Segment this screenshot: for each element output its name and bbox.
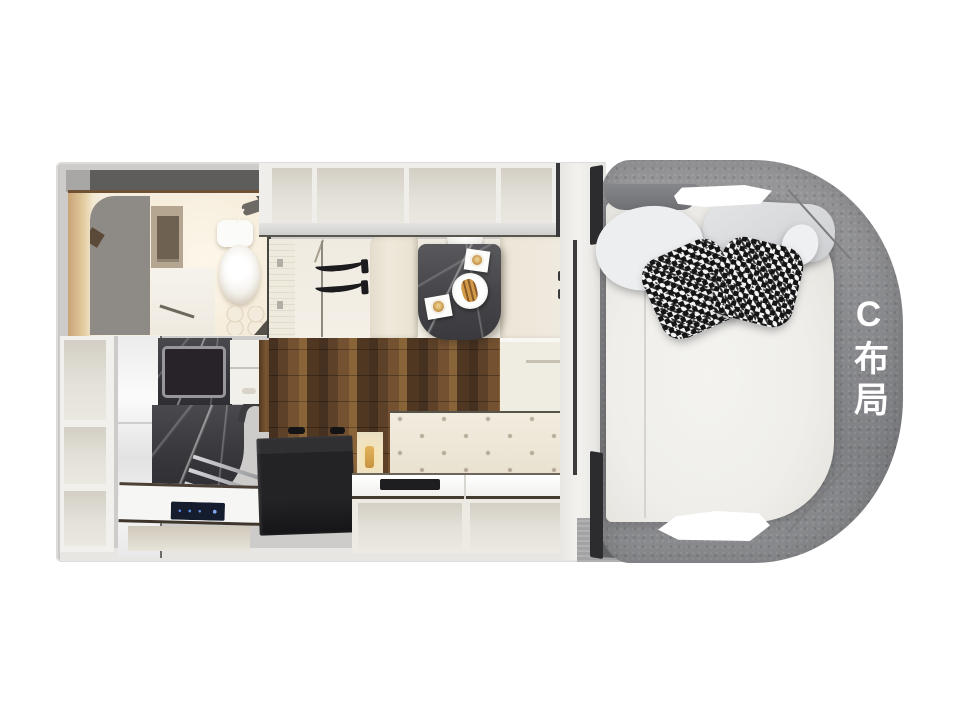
bathroom-wardrobe-doors bbox=[90, 196, 150, 335]
counter-seam bbox=[464, 475, 466, 501]
wardrobe-trim-bottom bbox=[590, 451, 603, 559]
wall-clip bbox=[277, 301, 283, 309]
wall-clip bbox=[277, 259, 283, 267]
bathroom-top-wall-corner bbox=[66, 170, 90, 192]
open-shelf-column bbox=[60, 336, 114, 552]
pastry bbox=[459, 278, 479, 304]
tv-bracket-arm bbox=[315, 275, 366, 293]
built-in-oven-screen bbox=[162, 346, 226, 398]
bathroom-top-wall bbox=[90, 170, 268, 192]
rv-floorplan-render: C布局 bbox=[0, 0, 964, 723]
kitchen-marble-column bbox=[158, 338, 232, 410]
counter-tray bbox=[380, 479, 440, 490]
bathroom-cubby bbox=[151, 206, 183, 268]
tufted-bench-backrest bbox=[390, 411, 574, 475]
dinette-bench-left bbox=[370, 237, 418, 338]
storage-compartment bbox=[358, 503, 462, 549]
toilet-tank bbox=[217, 220, 253, 247]
napkin bbox=[424, 294, 452, 320]
bathroom-lower-panel bbox=[151, 268, 215, 335]
plate bbox=[452, 273, 488, 309]
layout-label: C布局 bbox=[846, 288, 890, 428]
toilet-bowl bbox=[219, 245, 260, 304]
overhead-cabinet-box bbox=[272, 168, 312, 225]
tv-bracket-arm bbox=[315, 254, 366, 272]
tv-bracket-cap bbox=[361, 259, 369, 273]
overhead-cabinet-box bbox=[317, 168, 404, 225]
drawer-handle-notch bbox=[242, 388, 256, 394]
wardrobe-dark-edge bbox=[573, 240, 577, 475]
shelf-compartment bbox=[64, 340, 106, 420]
bench-storage bbox=[352, 499, 594, 553]
surround-handle-cutout-top bbox=[674, 185, 772, 207]
overhead-cabinet-shelf-band bbox=[259, 223, 556, 237]
shelf-compartment bbox=[64, 427, 106, 484]
bathroom-cubby-interior bbox=[157, 216, 179, 262]
towel-bar bbox=[159, 305, 194, 319]
ribbed-wall-strip bbox=[269, 239, 295, 339]
fridge bbox=[256, 435, 355, 535]
bathroom-room bbox=[90, 196, 267, 335]
lamp-niche bbox=[357, 432, 383, 476]
fridge-handle bbox=[330, 427, 345, 434]
tv-bracket-cap bbox=[361, 280, 369, 294]
lamp-bottle bbox=[365, 446, 374, 468]
coffee-cup bbox=[469, 252, 485, 268]
cooktop-control-panel bbox=[171, 502, 225, 521]
dinette-table bbox=[418, 244, 501, 340]
overhead-cabinet-box bbox=[501, 168, 552, 225]
coffee-cup bbox=[430, 298, 447, 315]
bench-counter bbox=[352, 473, 594, 499]
kitchen-counter-front bbox=[119, 482, 262, 526]
fridge-handle bbox=[288, 427, 305, 434]
under-counter-gap bbox=[128, 526, 250, 551]
napkin bbox=[464, 248, 491, 272]
overhead-cabinet-box bbox=[409, 168, 496, 225]
shelf-compartment bbox=[64, 491, 106, 546]
